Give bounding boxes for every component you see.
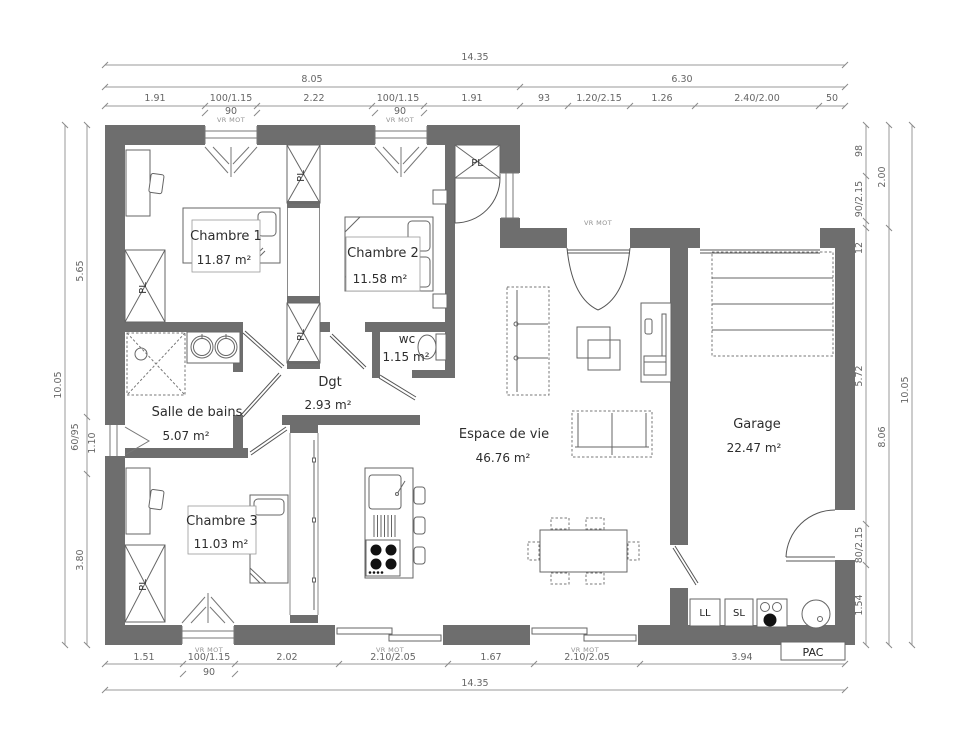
shower <box>127 333 185 395</box>
room-name-garage: Garage <box>733 417 781 432</box>
door-wc-icon <box>379 375 416 400</box>
dim-bottom-seg-2: 2.02 <box>276 652 297 663</box>
dim-bottom-seg-3: 2.10/2.05 <box>370 652 416 663</box>
dim-right-mid-0: 2.00 <box>877 166 888 187</box>
dim-top-seg-4: 1.91 <box>461 93 482 104</box>
window-chambre3-icon <box>182 593 234 644</box>
dim-bottom-seg-4: 1.67 <box>480 652 501 663</box>
door-chambre1-icon <box>243 331 284 368</box>
vrmot-entry: VR MOT <box>584 219 612 227</box>
dim-left-seg-3: 3.80 <box>75 549 86 570</box>
room-name-vie: Espace de vie <box>459 427 549 442</box>
label-pac: PAC <box>803 646 824 659</box>
dims-top: 14.35 8.05 6.30 1.91 100/1.15 2.22 100/1… <box>102 52 848 117</box>
dim-bottom-seg-6: 3.94 <box>731 652 752 663</box>
sofa-small <box>572 411 652 457</box>
room-area-wc: 1.15 m² <box>382 350 429 364</box>
room-name-chambre1: Chambre 1 <box>190 229 262 244</box>
room-name-dgt: Dgt <box>318 375 341 390</box>
partition-chambre3 <box>290 425 318 623</box>
closet-label-2: PL <box>138 579 149 591</box>
desk-chambre1 <box>126 150 164 216</box>
door-garage-rear-icon <box>786 510 835 561</box>
dim-top-seg-5: 93 <box>538 93 550 104</box>
closet-label-5: PL <box>471 158 483 169</box>
room-area-sdb: 5.07 m² <box>162 429 209 443</box>
window-chambre2-icon <box>375 126 427 177</box>
kitchen-island <box>365 468 425 578</box>
room-area-vie: 46.76 m² <box>476 451 531 465</box>
dim-top-total: 14.35 <box>461 52 488 63</box>
dim-right-seg-3: 5.72 <box>854 365 865 386</box>
entry-double-door-icon <box>567 248 630 310</box>
label-sl: SL <box>733 608 745 619</box>
room-name-chambre2: Chambre 2 <box>347 246 419 261</box>
door-chambre2-icon <box>330 334 366 369</box>
dim-top-seg-0: 1.91 <box>144 93 165 104</box>
window-chambre1-icon <box>205 126 257 177</box>
walls <box>105 125 855 645</box>
dim-right-seg-5: 1.54 <box>854 594 865 615</box>
room-name-chambre3: Chambre 3 <box>186 514 258 529</box>
closet-label-3: PL <box>296 170 307 182</box>
room-name-sdb: Salle de bains <box>152 405 243 420</box>
room-area-dgt: 2.93 m² <box>304 398 351 412</box>
desk-chambre3 <box>126 468 164 534</box>
dim-right-seg-2: 12 <box>854 242 865 254</box>
dim-top-seg-2: 2.22 <box>303 93 324 104</box>
room-name-wc: wc <box>399 332 415 346</box>
floor-plan-drawing: PL PL PL PL PL <box>0 0 960 739</box>
vanity-double-sink <box>187 332 240 363</box>
bay-window-1-icon <box>337 628 441 641</box>
dim-bottom-total: 14.35 <box>461 678 488 689</box>
vrmot-top-1: VR MOT <box>217 116 245 124</box>
dim-top-seg-6: 1.20/2.15 <box>576 93 622 104</box>
dim-right-mid-1: 8.06 <box>877 426 888 447</box>
dim-bottom-seg-5: 2.10/2.05 <box>564 652 610 663</box>
closet-label-4: PL <box>296 329 307 341</box>
room-area-chambre3: 11.03 m² <box>194 537 249 551</box>
dim-top-span-left: 8.05 <box>301 74 322 85</box>
dim-left-seg-2: 1.10 <box>87 432 98 453</box>
dims-left: 10.05 5.65 60/95 1.10 3.80 <box>53 122 98 648</box>
closet-label-1: PL <box>138 282 149 294</box>
dim-bottom-seg-1: 100/1.15 <box>188 652 231 663</box>
dining-table <box>528 518 639 584</box>
room-area-garage: 22.47 m² <box>727 441 782 455</box>
garage-door-icon <box>700 250 833 356</box>
dim-top-sub-2: 90 <box>394 106 406 117</box>
dim-bottom-sub: 90 <box>203 667 215 678</box>
door-closet-entry-icon <box>455 178 500 223</box>
dim-left-seg-0: 5.65 <box>75 260 86 281</box>
dim-top-seg-1: 100/1.15 <box>210 93 253 104</box>
water-heater <box>802 600 830 628</box>
dims-right: 98 90/2.15 12 5.72 80/2.15 1.54 2.00 8.0… <box>854 122 915 648</box>
dim-left-total: 10.05 <box>53 371 64 398</box>
door-sdb-icon <box>241 373 281 417</box>
tv-stand <box>641 303 671 382</box>
label-ll: LL <box>699 608 711 619</box>
floor-plan-canvas: PL PL PL PL PL <box>0 0 960 739</box>
dim-right-seg-0: 98 <box>854 145 865 157</box>
bay-window-2-icon <box>532 628 636 641</box>
room-area-chambre2: 11.58 m² <box>353 272 408 286</box>
dim-top-seg-8: 2.40/2.00 <box>734 93 780 104</box>
pac-unit: PAC <box>781 642 845 660</box>
dim-top-sub-1: 90 <box>225 106 237 117</box>
dim-right-seg-4: 80/2.15 <box>854 527 865 563</box>
dim-top-seg-9: 50 <box>826 93 838 104</box>
coffee-tables <box>577 327 620 370</box>
dim-right-seg-1: 90/2.15 <box>854 181 865 217</box>
dim-bottom-seg-0: 1.51 <box>133 652 154 663</box>
window-step-icon <box>501 173 519 218</box>
dim-top-seg-3: 100/1.15 <box>377 93 420 104</box>
dim-left-seg-1: 60/95 <box>70 423 81 450</box>
dims-bottom: 1.51 100/1.15 2.02 2.10/2.05 1.67 2.10/2… <box>102 652 848 693</box>
closets: PL PL PL PL PL <box>125 145 500 622</box>
dim-top-seg-7: 1.26 <box>651 93 672 104</box>
room-area-chambre1: 11.87 m² <box>197 253 252 267</box>
utility-appliance <box>757 599 787 627</box>
sofa-large <box>507 287 549 395</box>
dim-top-span-right: 6.30 <box>671 74 692 85</box>
dim-right-outer: 10.05 <box>900 376 911 403</box>
door-chambre3-icon <box>250 427 287 455</box>
door-garage-interior-icon <box>673 546 698 585</box>
vrmot-top-2: VR MOT <box>386 116 414 124</box>
